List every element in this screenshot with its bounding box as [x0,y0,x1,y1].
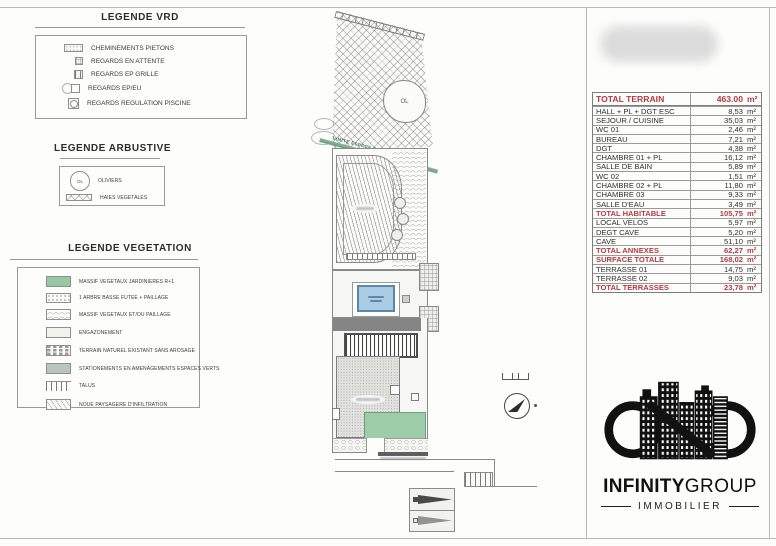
regard-attente-icon [75,57,83,65]
surface-table-body: HALL + PL + DGT ESC 8,53 m² SEJOUR / CUI… [593,106,761,292]
room-label: SURFACE TOTALE [593,256,691,264]
legend-item-label: REGARDS REGULATION PISCINE [87,100,191,107]
room-area-unit: m² [745,255,761,264]
legend-vrd-title: LEGENDE VRD [35,12,245,23]
room-label: SALLE DE BAIN [593,163,691,171]
legend-item-label: REGARDS EN ATTENTE [91,58,165,65]
boulder-symbol [397,213,409,225]
swatch-engazonement [46,327,71,338]
room-label: TOTAL TERRASSES [593,284,691,292]
table-row: SALLE D'EAU 3,49 m² [593,199,761,208]
table-row: WC 01 2,46 m² [593,125,761,134]
legend-item: STATIONEMENTS EN AMENAGEMENTS ESPACES VE… [46,363,199,374]
subtitle-rule-right [729,506,759,507]
table-row: LOCAL VELOS 5,97 m² [593,218,761,227]
table-row: TOTAL TERRASSES 23,78 m² [593,283,761,292]
logo-brand-bold: INFINITY [603,476,685,497]
table-row: DEGT CAVE 5,20 m² [593,227,761,236]
room-area-value: 16,12 [691,153,745,162]
legend-item-label: HAIES VEGETALES [100,195,147,201]
bench-symbol [518,373,529,380]
sheet-right-border [769,7,770,538]
table-row: BUREAU 7,21 m² [593,134,761,143]
swatch-stationements [46,363,71,374]
legend-item: HAIES VEGETALES [66,194,164,201]
pool-equipment-box [402,295,410,303]
hedge-icon [66,194,92,201]
olive-tree-symbol: OL [383,80,426,123]
logo-subtitle: IMMOBILIER [638,501,722,512]
road-line [492,486,537,487]
legend-arbustive-underline [60,158,160,159]
room-label: TOTAL ANNEXES [593,246,691,254]
parcel-middle-section [332,148,428,270]
parcel-bottom-edge [332,452,367,453]
legend-item: 1 ARBRE BASSE FUTEE + PAILLAGE [46,293,199,303]
room-area-value: 9,33 [691,190,745,199]
room-area-value: 105,75 [691,209,745,218]
legend-item-label: CHEMINEMENTS PIETONS [91,45,174,52]
legend-item-label: MASSIF VEGETAUX ET/OU PAILLAGE [79,312,171,318]
road-line [494,459,495,487]
room-area-value: 7,21 [691,135,745,144]
olive-tree-icon: OL [70,171,90,191]
room-area-value: 11,80 [691,181,745,190]
ramp-marker [413,497,418,502]
parking-ramp [409,488,455,532]
room-area-unit: m² [745,162,761,171]
legend-item: CHEMINEMENTS PIETONS [64,44,246,52]
regard-grille-icon [74,70,83,79]
swatch-talus [46,381,71,391]
table-row: WC 02 1,51 m² [593,171,761,180]
legend-item: REGARDS EN ATTENTE [70,57,246,65]
sheet-top-border [0,7,776,8]
room-area-value: 35,03 [691,116,745,125]
table-header-label: TOTAL TERRAIN [593,93,691,105]
room-area-unit: m² [745,135,761,144]
infiltration-basin [336,155,402,263]
legend-item-label: NOUE PAYSAGERE D'INFILTRATION [79,402,167,408]
regard-symbol [390,385,400,395]
room-area-value: 5,97 [691,218,745,227]
room-area-value: 4,38 [691,144,745,153]
room-area-unit: m² [745,228,761,237]
room-area-value: 9,03 [691,274,745,283]
street-edge-strip [378,452,428,456]
legend-item: REGARDS EP GRILLE [70,70,246,79]
stair-grid-symbol [419,263,439,291]
room-label: LOCAL VELOS [593,219,691,227]
legend-item: OL OLIVIERS [70,171,164,191]
room-label: WC 02 [593,172,691,180]
room-label: CAVE [593,237,691,245]
logo-skyline-icon [598,370,762,474]
regard-symbol [411,393,419,401]
legend-item-label: TERRAIN NATUREL EXISTANT SANS AROSAGE [79,348,195,354]
legend-item-label: REGARDS EP/EU [88,85,141,92]
legend-vegetation-title: LEGENDE VEGETATION [30,243,230,254]
room-label: SEJOUR / CUISINE [593,116,691,124]
regard-piscine-icon [68,98,79,109]
legend-item-label: OLIVIERS [98,178,122,184]
logo-subtitle-row: IMMOBILIER [601,501,759,512]
table-row: TOTAL HABITABLE 105,75 m² [593,208,761,217]
legend-item-label: 1 ARBRE BASSE FUTEE + PAILLAGE [79,295,168,301]
boulder-symbol [391,229,403,241]
table-row: SURFACE TOTALE 168,02 m² [593,255,761,264]
room-area-unit: m² [745,274,761,283]
table-row: DGT 4,38 m² [593,143,761,152]
room-area-unit: m² [745,144,761,153]
table-row: SALLE DE BAIN 5,89 m² [593,162,761,171]
sheet-bottom-border [0,538,776,539]
table-header-row: TOTAL TERRAIN 463.00 m² [593,93,761,106]
room-area-value: 14,75 [691,265,745,274]
pool [357,285,395,312]
regard-ep-eu-icon [62,83,80,94]
table-row: HALL + PL + DGT ESC 8,53 m² [593,106,761,115]
table-row: CHAMBRE 03 9,33 m² [593,190,761,199]
room-area-value: 62,27 [691,246,745,255]
ramp-marker [413,518,418,523]
point-marker [534,404,537,407]
room-area-value: 1,51 [691,172,745,181]
steps-symbol [464,472,493,487]
swatch-massif-paillage [46,309,71,320]
plan-sheet: LEGENDE VRD CHEMINEMENTS PIETONS REGARDS… [0,0,776,546]
room-area-value: 5,20 [691,228,745,237]
low-wall-ticks [346,253,416,260]
legend-vegetation-underline [10,259,198,260]
agency-logo: INFINITYGROUP IMMOBILIER [594,370,766,512]
legend-item-label: MASSIF VEGETAUX JARDINIERES R+1 [79,279,174,285]
room-label: WC 01 [593,126,691,134]
room-label: CHAMBRE 01 + PL [593,153,691,161]
legend-item: MASSIF VEGETAUX ET/OU PAILLAGE [46,309,199,320]
swatch-noue [46,399,71,410]
room-label: CHAMBRE 03 [593,191,691,199]
pietons-swatch-icon [64,44,83,52]
road-line [335,459,495,460]
legend-arbustive-box: OL OLIVIERS HAIES VEGETALES [59,166,165,206]
legend-vrd-box: CHEMINEMENTS PIETONS REGARDS EN ATTENTE … [35,35,247,119]
table-row: TERRASSE 02 9,03 m² [593,273,761,282]
room-label: BUREAU [593,135,691,143]
legend-vrd-underline [35,27,245,28]
table-row: CHAMBRE 02 + PL 11,80 m² [593,180,761,189]
dark-wall-band [333,318,421,331]
room-area-value: 23,78 [691,283,745,292]
bush-outline [314,118,334,130]
room-area-unit: m² [745,181,761,190]
room-area-unit: m² [745,116,761,125]
legend-item: REGARDS EP/EU [62,83,246,94]
table-row: SEJOUR / CUISINE 35,03 m² [593,115,761,124]
boulder-symbol [394,197,406,209]
room-area-unit: m² [745,172,761,181]
logo-brand-light: GROUP [685,476,757,497]
basin-label-smudge [351,204,379,213]
subtitle-rule-left [601,506,631,507]
room-area-unit: m² [745,107,761,116]
room-area-value: 51,10 [691,237,745,246]
ramp-arrow [418,516,452,525]
ramp-arrow [418,495,452,504]
room-area-unit: m² [745,125,761,134]
room-area-unit: m² [745,200,761,209]
room-area-unit: m² [745,283,761,292]
room-label: DEGT CAVE [593,228,691,236]
room-area-unit: m² [745,209,761,218]
legend-item-label: REGARDS EP GRILLE [91,71,158,78]
legend-item: NOUE PAYSAGERE D'INFILTRATION [46,399,199,410]
room-area-unit: m² [745,218,761,227]
room-area-unit: m² [745,190,761,199]
bench-symbol [502,373,513,380]
room-label: TOTAL HABITABLE [593,209,691,217]
room-area-value: 2,46 [691,125,745,134]
room-label: DGT [593,144,691,152]
legend-item: ENGAZONEMENT [46,327,199,338]
surface-table: TOTAL TERRAIN 463.00 m² HALL + PL + DGT … [592,92,762,293]
room-area-value: 3,49 [691,200,745,209]
legend-item-label: ENGAZONEMENT [79,330,122,336]
building-label-smudge [351,395,385,404]
table-header-value: 463.00 [691,94,745,104]
ramp-divider [410,510,454,511]
bench-link-line [513,379,518,380]
room-area-unit: m² [745,153,761,162]
north-arrow-icon [504,393,530,419]
room-area-unit: m² [745,246,761,255]
table-row: CAVE 51,10 m² [593,236,761,245]
room-area-unit: m² [745,237,761,246]
swatch-arbre-paillage [46,293,71,303]
legend-arbustive-title: LEGENDE ARBUSTIVE [35,143,190,154]
driveway-gap [366,438,385,452]
table-header-unit: m² [745,94,761,104]
room-label: HALL + PL + DGT ESC [593,107,691,115]
table-row: TOTAL ANNEXES 62,27 m² [593,245,761,254]
room-area-unit: m² [745,265,761,274]
room-label: TERRASSE 02 [593,274,691,282]
legend-item: TALUS [46,381,199,391]
swatch-terrain-naturel [46,345,71,356]
table-row: CHAMBRE 01 + PL 16,12 m² [593,152,761,161]
legend-vegetation-box: MASSIF VEGETAUX JARDINIERES R+1 1 ARBRE … [17,267,200,408]
room-label: CHAMBRE 02 + PL [593,181,691,189]
pool-terrace [332,270,428,318]
legend-item: REGARDS REGULATION PISCINE [66,98,246,109]
logo-wordmark: INFINITYGROUP [603,476,757,498]
room-area-value: 5,89 [691,162,745,171]
redacted-text-blur [600,26,718,62]
table-row: TERRASSE 01 14,75 m² [593,264,761,273]
room-label: TERRASSE 01 [593,265,691,273]
room-label: SALLE D'EAU [593,200,691,208]
swatch-massif-jardinieres [46,276,71,287]
entry-notch [332,408,340,420]
room-area-value: 168,02 [691,255,745,264]
legend-item: TERRAIN NATUREL EXISTANT SANS AROSAGE [46,345,199,356]
room-area-value: 8,53 [691,107,745,116]
pergola-striped-structure [344,333,418,358]
panel-divider [586,7,587,538]
road-line [335,471,454,472]
legend-item-label: TALUS [79,383,95,389]
legend-item: MASSIF VEGETAUX JARDINIERES R+1 [46,276,199,287]
legend-item-label: STATIONEMENTS EN AMENAGEMENTS ESPACES VE… [79,366,220,372]
north-arrow-pointer [508,399,525,412]
